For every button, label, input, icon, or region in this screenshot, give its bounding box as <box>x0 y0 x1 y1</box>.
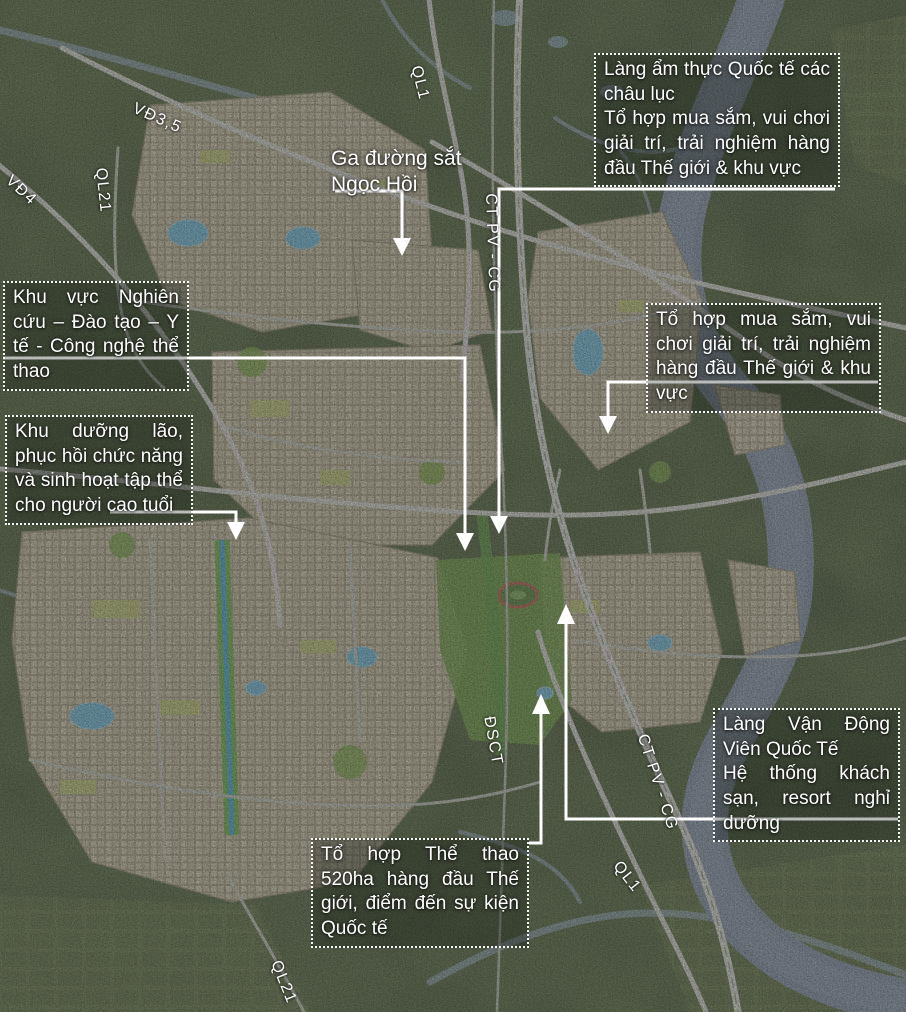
annotation-text: Khu vực Nghiên cứu – Đào tạo – Y tế - Cô… <box>13 286 179 385</box>
road-label-ct-pv-cg-north: CT PV - CG <box>481 193 502 294</box>
annotation-text: Làng Vận Động Viên Quốc Tế <box>723 713 890 762</box>
annotation-the-thao: Tổ hợp Thể thao 520ha hàng đầu Thế giới,… <box>311 838 529 948</box>
annotation-ga-ngoc-hoi: Ga đường sắt Ngọc Hồi <box>331 146 471 199</box>
masterplan-aerial-map: QL1 VĐ3,5 VĐ4 QL21 CT PV - CG ĐSCT CT PV… <box>0 0 906 1012</box>
annotation-text: Ga đường sắt Ngọc Hồi <box>331 146 471 199</box>
annotation-text: Tổ hợp mua sắm, vui chơi giải trí, trải … <box>656 308 871 407</box>
annotation-duong-lao: Khu dưỡng lão, phục hồi chức năng và sin… <box>5 415 193 525</box>
annotation-mua-sam: Tổ hợp mua sắm, vui chơi giải trí, trải … <box>646 303 881 413</box>
annotation-text: Làng ẩm thực Quốc tế các châu lục <box>604 58 830 107</box>
annotation-text: Hệ thống khách sạn, resort nghỉ dưỡng <box>723 762 890 836</box>
annotation-text: Tổ hợp Thể thao 520ha hàng đầu Thế giới,… <box>321 843 519 942</box>
annotation-text: Khu dưỡng lão, phục hồi chức năng và sin… <box>15 420 183 519</box>
annotation-nghien-cuu: Khu vực Nghiên cứu – Đào tạo – Y tế - Cô… <box>3 281 189 391</box>
annotation-van-dong-vien: Làng Vận Động Viên Quốc Tế Hệ thống khác… <box>713 708 900 842</box>
annotation-lang-am-thuc: Làng ẩm thực Quốc tế các châu lục Tổ hợp… <box>594 53 840 187</box>
annotation-text: Tổ hợp mua sắm, vui chơi giải trí, trải … <box>604 107 830 181</box>
